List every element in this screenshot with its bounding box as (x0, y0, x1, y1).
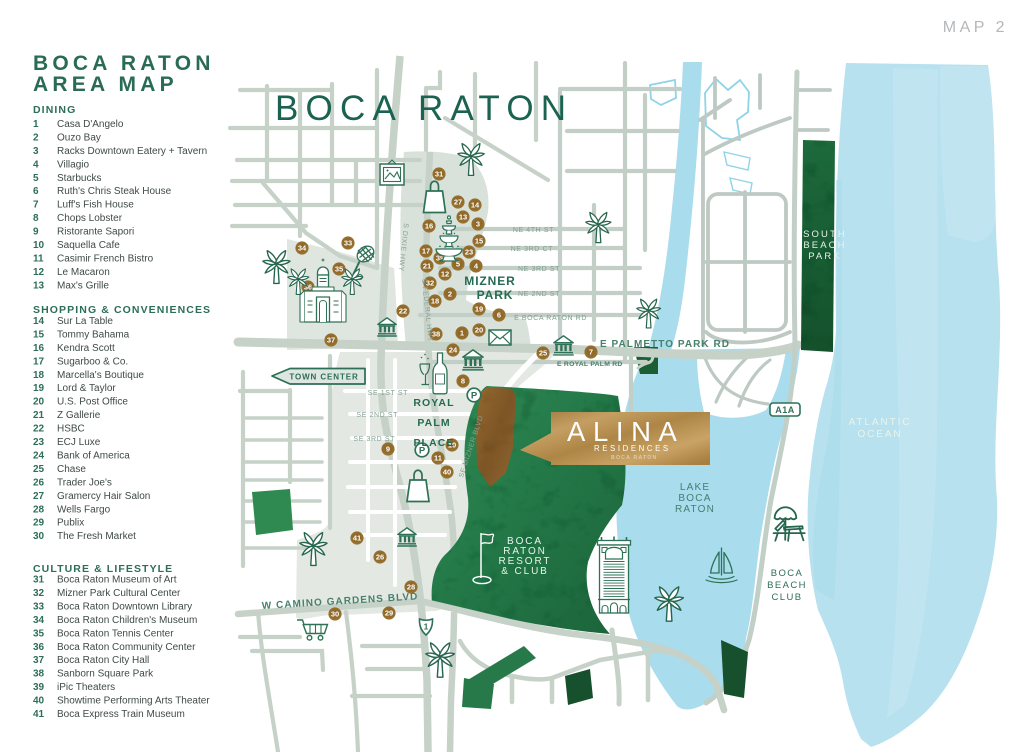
svg-text:Villagio: Villagio (57, 159, 89, 170)
svg-text:Racks Downtown Eatery + Tavern: Racks Downtown Eatery + Tavern (57, 146, 207, 157)
svg-text:37: 37 (327, 336, 335, 345)
svg-text:LAKE: LAKE (680, 482, 710, 493)
svg-text:7: 7 (33, 200, 39, 211)
svg-text:31: 31 (33, 575, 45, 586)
svg-text:1: 1 (424, 622, 429, 632)
svg-text:4: 4 (33, 159, 39, 170)
svg-text:Boca Raton Community Center: Boca Raton Community Center (57, 642, 196, 653)
svg-text:CLUB: CLUB (772, 592, 803, 603)
svg-text:Casimir French Bistro: Casimir French Bistro (57, 254, 154, 265)
svg-text:ECJ Luxe: ECJ Luxe (57, 437, 101, 448)
svg-text:6: 6 (497, 311, 501, 320)
svg-text:NE 4TH ST: NE 4TH ST (513, 227, 554, 234)
svg-text:5: 5 (33, 173, 39, 184)
svg-text:iPic Theaters: iPic Theaters (57, 682, 115, 693)
svg-text:37: 37 (33, 655, 45, 666)
svg-text:DINING: DINING (33, 104, 76, 116)
svg-text:SOUTH: SOUTH (803, 229, 847, 240)
svg-text:34: 34 (33, 615, 45, 626)
svg-text:Ruth's Chris Steak House: Ruth's Chris Steak House (57, 186, 172, 197)
svg-text:7: 7 (589, 348, 593, 357)
svg-text:NE 2ND ST: NE 2ND ST (518, 291, 560, 298)
svg-text:40: 40 (443, 468, 451, 477)
svg-text:E ROYAL PALM RD: E ROYAL PALM RD (557, 361, 623, 368)
svg-text:10: 10 (33, 240, 45, 251)
svg-text:HSBC: HSBC (57, 424, 85, 435)
svg-text:2: 2 (448, 290, 452, 299)
svg-text:39: 39 (33, 682, 45, 693)
svg-text:ROYAL: ROYAL (413, 397, 454, 409)
svg-text:Bank of America: Bank of America (57, 451, 130, 462)
svg-text:NE 3RD ST: NE 3RD ST (518, 266, 560, 273)
svg-text:23: 23 (465, 248, 473, 257)
svg-text:34: 34 (298, 244, 307, 253)
svg-text:22: 22 (399, 307, 407, 316)
svg-text:18: 18 (431, 297, 439, 306)
svg-text:17: 17 (33, 356, 45, 367)
svg-text:A1A: A1A (775, 405, 795, 415)
svg-text:9: 9 (33, 227, 39, 238)
svg-text:BEACH: BEACH (803, 240, 846, 251)
svg-text:OCEAN: OCEAN (857, 429, 902, 440)
svg-text:RESIDENCES: RESIDENCES (594, 444, 671, 453)
svg-text:6: 6 (33, 186, 39, 197)
svg-text:Showtime Performing Arts Theat: Showtime Performing Arts Theater (57, 696, 210, 707)
svg-text:Mizner Park Cultural Center: Mizner Park Cultural Center (57, 588, 181, 599)
svg-text:Boca Express Train Museum: Boca Express Train Museum (57, 709, 185, 720)
svg-text:SE 3RD ST: SE 3RD ST (353, 436, 395, 443)
svg-text:Starbucks: Starbucks (57, 173, 101, 184)
svg-text:RATON: RATON (675, 504, 715, 515)
svg-text:33: 33 (344, 239, 352, 248)
svg-text:17: 17 (422, 247, 430, 256)
svg-text:ATLANTIC: ATLANTIC (849, 417, 912, 428)
svg-text:30: 30 (33, 531, 45, 542)
svg-text:25: 25 (539, 349, 547, 358)
svg-text:Boca Raton Museum of Art: Boca Raton Museum of Art (57, 575, 177, 586)
svg-text:AREA MAP: AREA MAP (33, 73, 178, 96)
svg-text:31: 31 (435, 170, 443, 179)
svg-text:25: 25 (33, 464, 45, 475)
svg-text:PARK: PARK (808, 251, 842, 262)
svg-text:E PALMETTO PARK RD: E PALMETTO PARK RD (600, 339, 730, 350)
svg-text:40: 40 (33, 696, 45, 707)
svg-text:19: 19 (475, 305, 483, 314)
svg-text:Ouzo Bay: Ouzo Bay (57, 132, 101, 143)
svg-text:29: 29 (385, 609, 393, 618)
svg-text:Tommy Bahama: Tommy Bahama (57, 329, 130, 340)
svg-text:Publix: Publix (57, 518, 84, 529)
svg-text:32: 32 (33, 588, 45, 599)
svg-text:BOCA: BOCA (771, 568, 804, 579)
svg-text:SE 2ND ST: SE 2ND ST (356, 412, 398, 419)
svg-text:BOCA RATON: BOCA RATON (611, 455, 658, 461)
svg-text:PALM: PALM (417, 417, 450, 429)
svg-text:2: 2 (33, 132, 39, 143)
svg-text:Lord & Taylor: Lord & Taylor (57, 383, 116, 394)
svg-text:33: 33 (33, 601, 45, 612)
svg-text:PLACE: PLACE (413, 437, 454, 449)
svg-text:BOCA: BOCA (678, 493, 711, 504)
svg-text:24: 24 (449, 346, 458, 355)
svg-text:14: 14 (33, 316, 45, 327)
svg-text:13: 13 (33, 280, 45, 291)
svg-text:38: 38 (33, 669, 45, 680)
svg-text:TOWN CENTER: TOWN CENTER (289, 373, 358, 382)
svg-text:12: 12 (33, 267, 45, 278)
svg-text:13: 13 (459, 213, 467, 222)
svg-text:20: 20 (33, 397, 45, 408)
svg-text:Saquella Cafe: Saquella Cafe (57, 240, 120, 251)
svg-text:20: 20 (475, 326, 483, 335)
svg-text:NE 3RD CT: NE 3RD CT (511, 246, 553, 253)
svg-text:14: 14 (471, 201, 480, 210)
svg-text:15: 15 (475, 237, 483, 246)
svg-text:SHOPPING & CONVENIENCES: SHOPPING & CONVENIENCES (33, 304, 211, 316)
svg-text:21: 21 (423, 262, 431, 271)
svg-text:Kendra Scott: Kendra Scott (57, 343, 115, 354)
svg-text:Marcella's Boutique: Marcella's Boutique (57, 370, 144, 381)
svg-text:Wells Fargo: Wells Fargo (57, 504, 111, 515)
svg-text:Boca Raton City Hall: Boca Raton City Hall (57, 655, 149, 666)
svg-text:CULTURE & LIFESTYLE: CULTURE & LIFESTYLE (33, 563, 173, 575)
svg-text:28: 28 (407, 583, 415, 592)
svg-text:SE 1ST ST: SE 1ST ST (368, 390, 408, 397)
svg-text:Ristorante Sapori: Ristorante Sapori (57, 227, 134, 238)
svg-text:The Fresh Market: The Fresh Market (57, 531, 136, 542)
svg-text:Trader Joe's: Trader Joe's (57, 477, 112, 488)
svg-text:11: 11 (434, 454, 442, 463)
svg-text:18: 18 (33, 370, 45, 381)
svg-text:15: 15 (33, 329, 45, 340)
svg-text:28: 28 (33, 504, 45, 515)
svg-text:29: 29 (33, 518, 45, 529)
svg-text:8: 8 (461, 377, 465, 386)
svg-text:26: 26 (33, 477, 45, 488)
svg-text:1: 1 (460, 329, 464, 338)
svg-text:ALINA: ALINA (567, 416, 684, 447)
svg-text:35: 35 (33, 628, 45, 639)
svg-text:35: 35 (335, 265, 343, 274)
svg-text:3: 3 (476, 220, 480, 229)
svg-text:Boca Raton Tennis Center: Boca Raton Tennis Center (57, 628, 174, 639)
svg-text:Boca Raton Downtown Library: Boca Raton Downtown Library (57, 601, 192, 612)
svg-text:41: 41 (33, 709, 45, 720)
svg-text:& CLUB: & CLUB (501, 566, 549, 577)
svg-text:Le Macaron: Le Macaron (57, 267, 110, 278)
svg-text:16: 16 (425, 222, 433, 231)
svg-text:22: 22 (33, 424, 45, 435)
svg-text:24: 24 (33, 451, 45, 462)
svg-text:Sugarboo & Co.: Sugarboo & Co. (57, 356, 128, 367)
svg-text:PARK: PARK (477, 288, 514, 302)
svg-text:Gramercy Hair Salon: Gramercy Hair Salon (57, 491, 150, 502)
svg-text:Boca Raton Children's Museum: Boca Raton Children's Museum (57, 615, 197, 626)
svg-text:19: 19 (33, 383, 45, 394)
svg-text:Z Gallerie: Z Gallerie (57, 410, 101, 421)
svg-text:3: 3 (33, 146, 39, 157)
svg-text:Chase: Chase (57, 464, 86, 475)
svg-text:Max's Grille: Max's Grille (57, 280, 109, 291)
svg-text:12: 12 (441, 270, 449, 279)
svg-text:8: 8 (33, 213, 39, 224)
svg-text:Chops Lobster: Chops Lobster (57, 213, 123, 224)
svg-text:BEACH: BEACH (767, 580, 807, 591)
svg-text:MIZNER: MIZNER (464, 274, 515, 288)
svg-text:27: 27 (33, 491, 45, 502)
svg-text:41: 41 (353, 534, 361, 543)
svg-text:16: 16 (33, 343, 45, 354)
svg-text:11: 11 (33, 254, 44, 265)
svg-text:U.S. Post Office: U.S. Post Office (57, 397, 128, 408)
svg-text:MAP 2: MAP 2 (943, 19, 1008, 36)
svg-text:Sanborn Square Park: Sanborn Square Park (57, 669, 154, 680)
svg-text:Casa D'Angelo: Casa D'Angelo (57, 119, 124, 130)
svg-text:21: 21 (33, 410, 45, 421)
svg-text:Sur La Table: Sur La Table (57, 316, 113, 327)
svg-text:E BOCA RATON RD: E BOCA RATON RD (514, 315, 587, 322)
svg-text:P: P (471, 391, 478, 402)
svg-text:27: 27 (454, 198, 462, 207)
svg-text:36: 36 (33, 642, 45, 653)
svg-text:BOCA RATON: BOCA RATON (275, 89, 573, 128)
svg-text:Luff's Fish House: Luff's Fish House (57, 200, 134, 211)
svg-text:30: 30 (331, 610, 339, 619)
svg-text:9: 9 (386, 445, 390, 454)
svg-text:BOCA RATON: BOCA RATON (33, 52, 215, 75)
svg-text:1: 1 (33, 119, 39, 130)
svg-text:23: 23 (33, 437, 45, 448)
svg-text:26: 26 (376, 553, 384, 562)
